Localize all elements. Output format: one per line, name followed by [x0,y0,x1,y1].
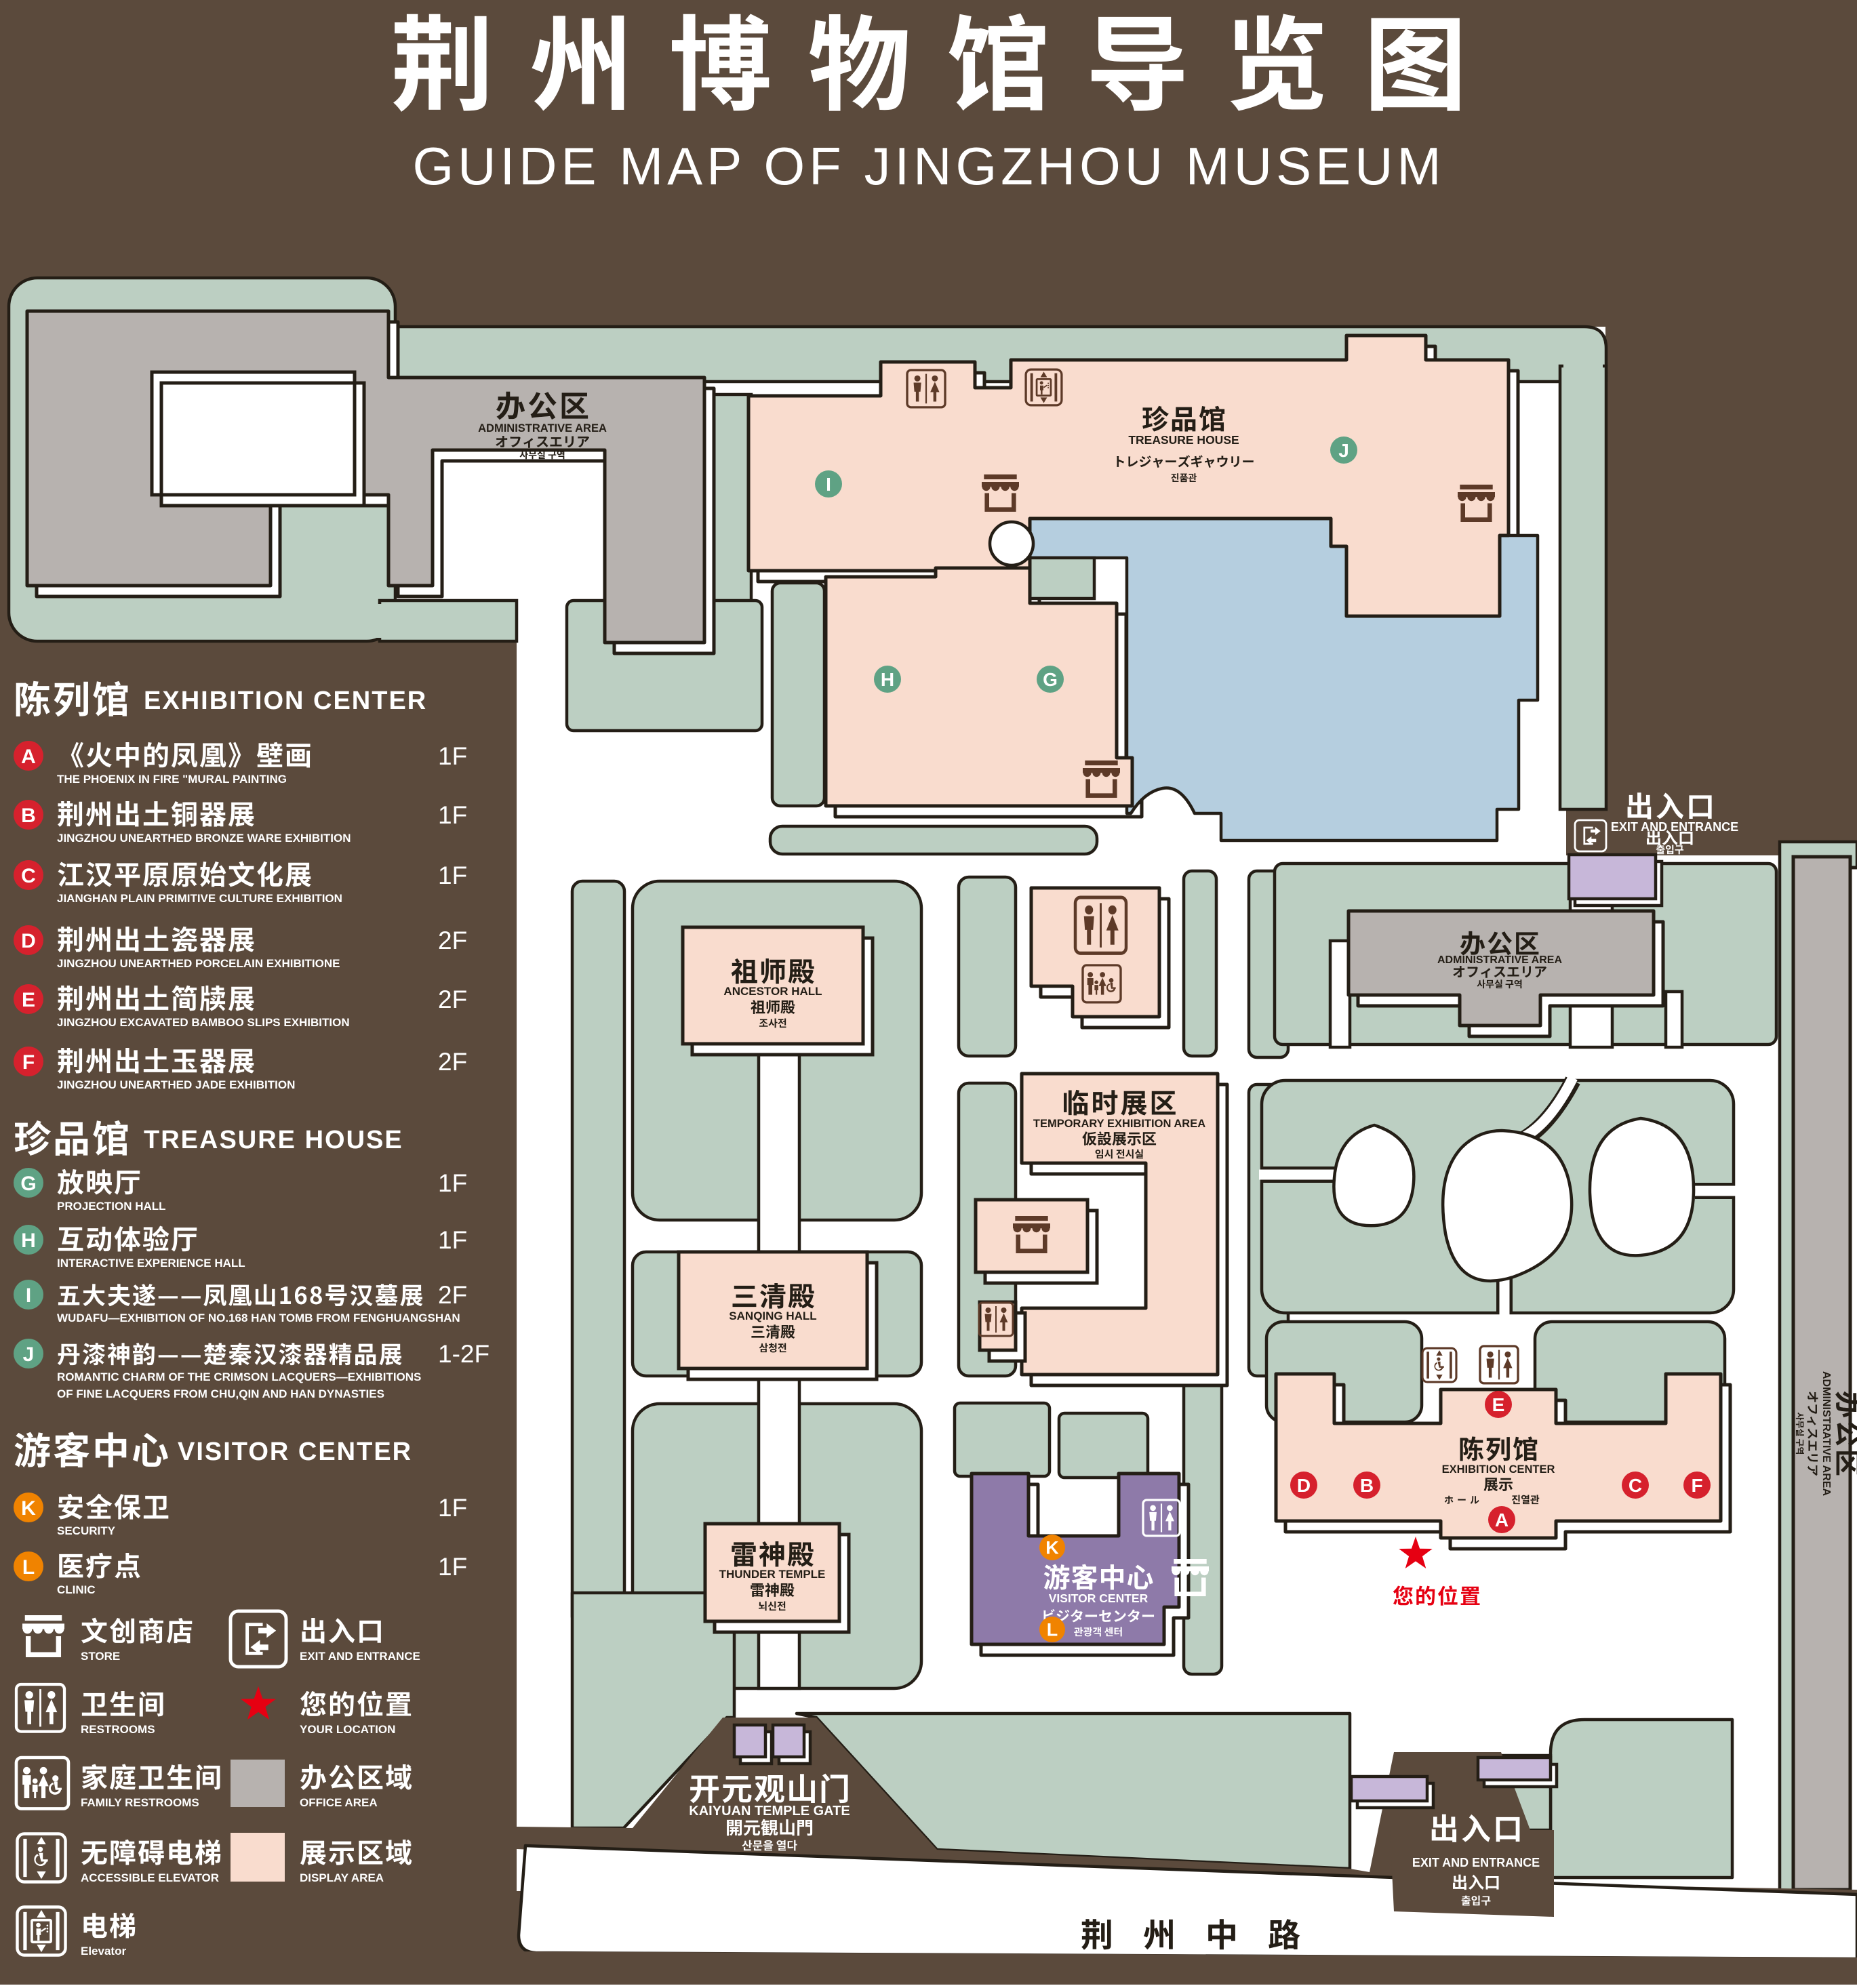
svg-text:VISITOR CENTER: VISITOR CENTER [178,1438,412,1466]
svg-text:JINGZHOU UNEARTHED PORCELAIN E: JINGZHOU UNEARTHED PORCELAIN EXHIBITIONE [57,957,340,970]
svg-text:2F: 2F [438,1048,467,1076]
svg-text:C: C [1629,1475,1642,1496]
svg-text:WUDAFU—EXHIBITION OF NO.168 HA: WUDAFU—EXHIBITION OF NO.168 HAN TOMB FRO… [57,1312,460,1324]
svg-text:1F: 1F [438,1553,467,1581]
svg-text:E: E [1492,1394,1505,1415]
svg-text:JIANGHAN PLAIN PRIMITIVE CULTU: JIANGHAN PLAIN PRIMITIVE CULTURE EXHIBIT… [57,892,342,905]
svg-text:1F: 1F [438,1494,467,1522]
svg-text:OFFICE AREA: OFFICE AREA [300,1796,378,1809]
svg-text:1-2F: 1-2F [438,1340,490,1368]
svg-text:B: B [21,805,36,827]
svg-text:Elevator: Elevator [81,1945,126,1957]
svg-text:D: D [1297,1475,1311,1496]
svg-text:THUNDER TEMPLE: THUNDER TEMPLE [719,1568,826,1581]
svg-text:H: H [881,669,894,690]
svg-text:C: C [21,865,36,887]
svg-text:G: G [1043,669,1058,690]
svg-text:CLINIC: CLINIC [57,1583,96,1596]
svg-text:2F: 2F [438,986,467,1013]
svg-text:E: E [22,989,35,1011]
svg-text:L: L [1047,1620,1058,1640]
svg-text:VISITOR CENTER: VISITOR CENTER [1049,1591,1149,1605]
svg-text:SECURITY: SECURITY [57,1524,116,1537]
svg-text:KAIYUAN TEMPLE GATE: KAIYUAN TEMPLE GATE [689,1804,850,1819]
svg-text:B: B [1360,1475,1374,1496]
svg-text:EXHIBITION CENTER: EXHIBITION CENTER [1442,1463,1555,1476]
svg-text:A: A [1495,1509,1509,1530]
svg-text:1F: 1F [438,1226,467,1254]
svg-text:ACCESSIBLE ELEVATOR: ACCESSIBLE ELEVATOR [81,1871,219,1884]
svg-text:K: K [21,1497,36,1520]
svg-text:F: F [1691,1475,1702,1496]
svg-text:1F: 1F [438,801,467,829]
svg-text:2F: 2F [438,1281,467,1309]
svg-text:JINGZHOU EXCAVATED BAMBOO SLIP: JINGZHOU EXCAVATED BAMBOO SLIPS EXHIBITI… [57,1016,350,1029]
svg-text:F: F [22,1051,35,1074]
svg-text:D: D [21,930,36,952]
svg-text:J: J [23,1343,35,1366]
svg-text:THE PHOENIX IN FIRE "MURAL PAI: THE PHOENIX IN FIRE "MURAL PAINTING [57,773,287,786]
svg-text:INTERACTIVE EXPERIENCE HALL: INTERACTIVE EXPERIENCE HALL [57,1257,245,1270]
svg-text:ANCESTOR HALL: ANCESTOR HALL [723,985,822,998]
svg-text:JINGZHOU UNEARTHED JADE EXHIBI: JINGZHOU UNEARTHED JADE EXHIBITION [57,1078,295,1091]
svg-text:I: I [26,1284,31,1307]
svg-text:STORE: STORE [81,1650,120,1663]
svg-text:A: A [21,746,36,768]
svg-text:EXIT AND ENTRANCE: EXIT AND ENTRANCE [1611,820,1738,834]
svg-text:1F: 1F [438,742,467,770]
svg-text:1F: 1F [438,1169,467,1197]
svg-text:G: G [20,1173,36,1195]
svg-text:RESTROOMS: RESTROOMS [81,1723,155,1736]
svg-text:TREASURE HOUSE: TREASURE HOUSE [1128,433,1239,447]
svg-text:SANQING HALL: SANQING HALL [729,1310,816,1322]
svg-text:K: K [1045,1538,1059,1558]
svg-text:TEMPORARY EXHIBITION AREA: TEMPORARY EXHIBITION AREA [1033,1118,1205,1130]
svg-text:1F: 1F [438,861,467,889]
svg-text:FAMILY RESTROOMS: FAMILY RESTROOMS [81,1796,199,1809]
svg-text:DISPLAY AREA: DISPLAY AREA [300,1871,384,1884]
svg-text:EXHIBITION CENTER: EXHIBITION CENTER [144,687,427,715]
svg-text:ROMANTIC CHARM OF THE CRIMSON: ROMANTIC CHARM OF THE CRIMSON LACQUERS—E… [57,1371,421,1383]
svg-text:OF FINE LACQUERS FROM CHU,QIN: OF FINE LACQUERS FROM CHU,QIN AND HAN DY… [57,1387,384,1400]
svg-text:PROJECTION HALL: PROJECTION HALL [57,1200,166,1213]
svg-text:ADMINISTRATIVE AREA: ADMINISTRATIVE AREA [478,422,607,434]
svg-text:L: L [22,1556,35,1579]
svg-text:ADMINISTRATIVE AREA: ADMINISTRATIVE AREA [1437,954,1562,966]
svg-text:H: H [21,1230,36,1252]
svg-text:JINGZHOU UNEARTHED BRONZE WARE: JINGZHOU UNEARTHED BRONZE WARE EXHIBITIO… [57,832,351,845]
svg-text:YOUR LOCATION: YOUR LOCATION [300,1723,395,1736]
svg-text:ADMINISTRATIVE AREA: ADMINISTRATIVE AREA [1820,1371,1832,1496]
svg-text:EXIT AND ENTRANCE: EXIT AND ENTRANCE [300,1650,420,1663]
svg-text:TREASURE HOUSE: TREASURE HOUSE [144,1126,403,1154]
svg-text:2F: 2F [438,927,467,954]
svg-text:GUIDE MAP OF JINGZHOU MUSEUM: GUIDE MAP OF JINGZHOU MUSEUM [413,136,1445,196]
svg-text:I: I [826,474,831,495]
svg-text:EXIT AND ENTRANCE: EXIT AND ENTRANCE [1412,1856,1540,1869]
svg-text:J: J [1338,440,1349,461]
